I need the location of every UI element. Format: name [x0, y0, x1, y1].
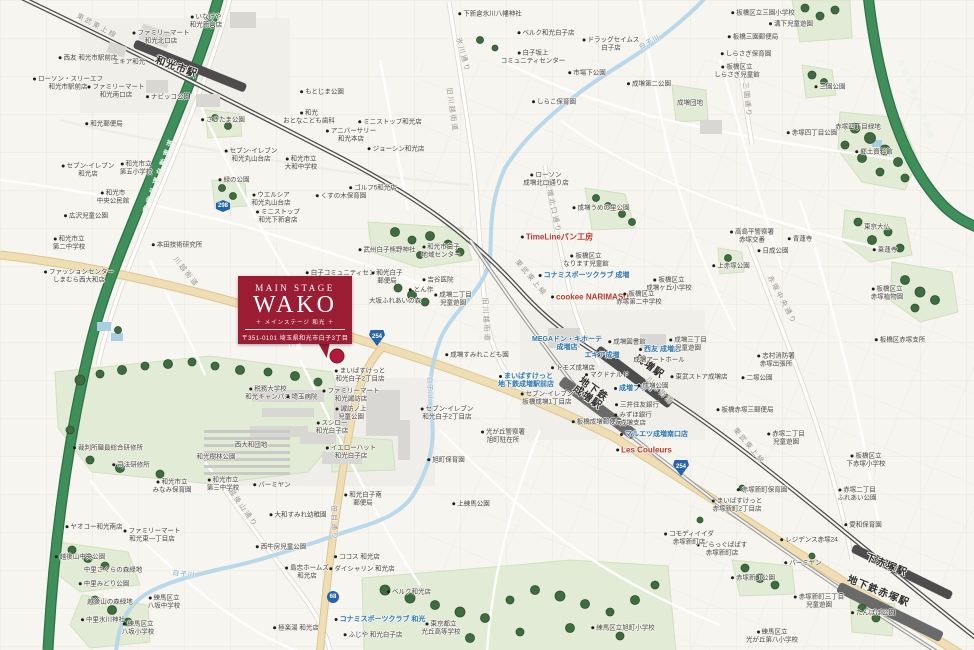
callout-address: 〒351-0101 埼玉県和光市白子3丁目10番	[238, 333, 352, 351]
base-map	[0, 0, 974, 650]
main-callout: MAIN STAGE WAKO ＋ メインステージ 和光 ＋ 〒351-0101…	[238, 276, 352, 344]
callout-subtitle: ＋ メインステージ 和光 ＋	[238, 318, 352, 326]
callout-title-large: WAKO	[238, 293, 352, 317]
area-map: 和光市駅成増駅地下鉄成増駅下赤塚駅地下鉄赤塚駅東武東上線東武東上線東武東上線川越…	[0, 0, 974, 650]
callout-divider	[245, 329, 345, 330]
